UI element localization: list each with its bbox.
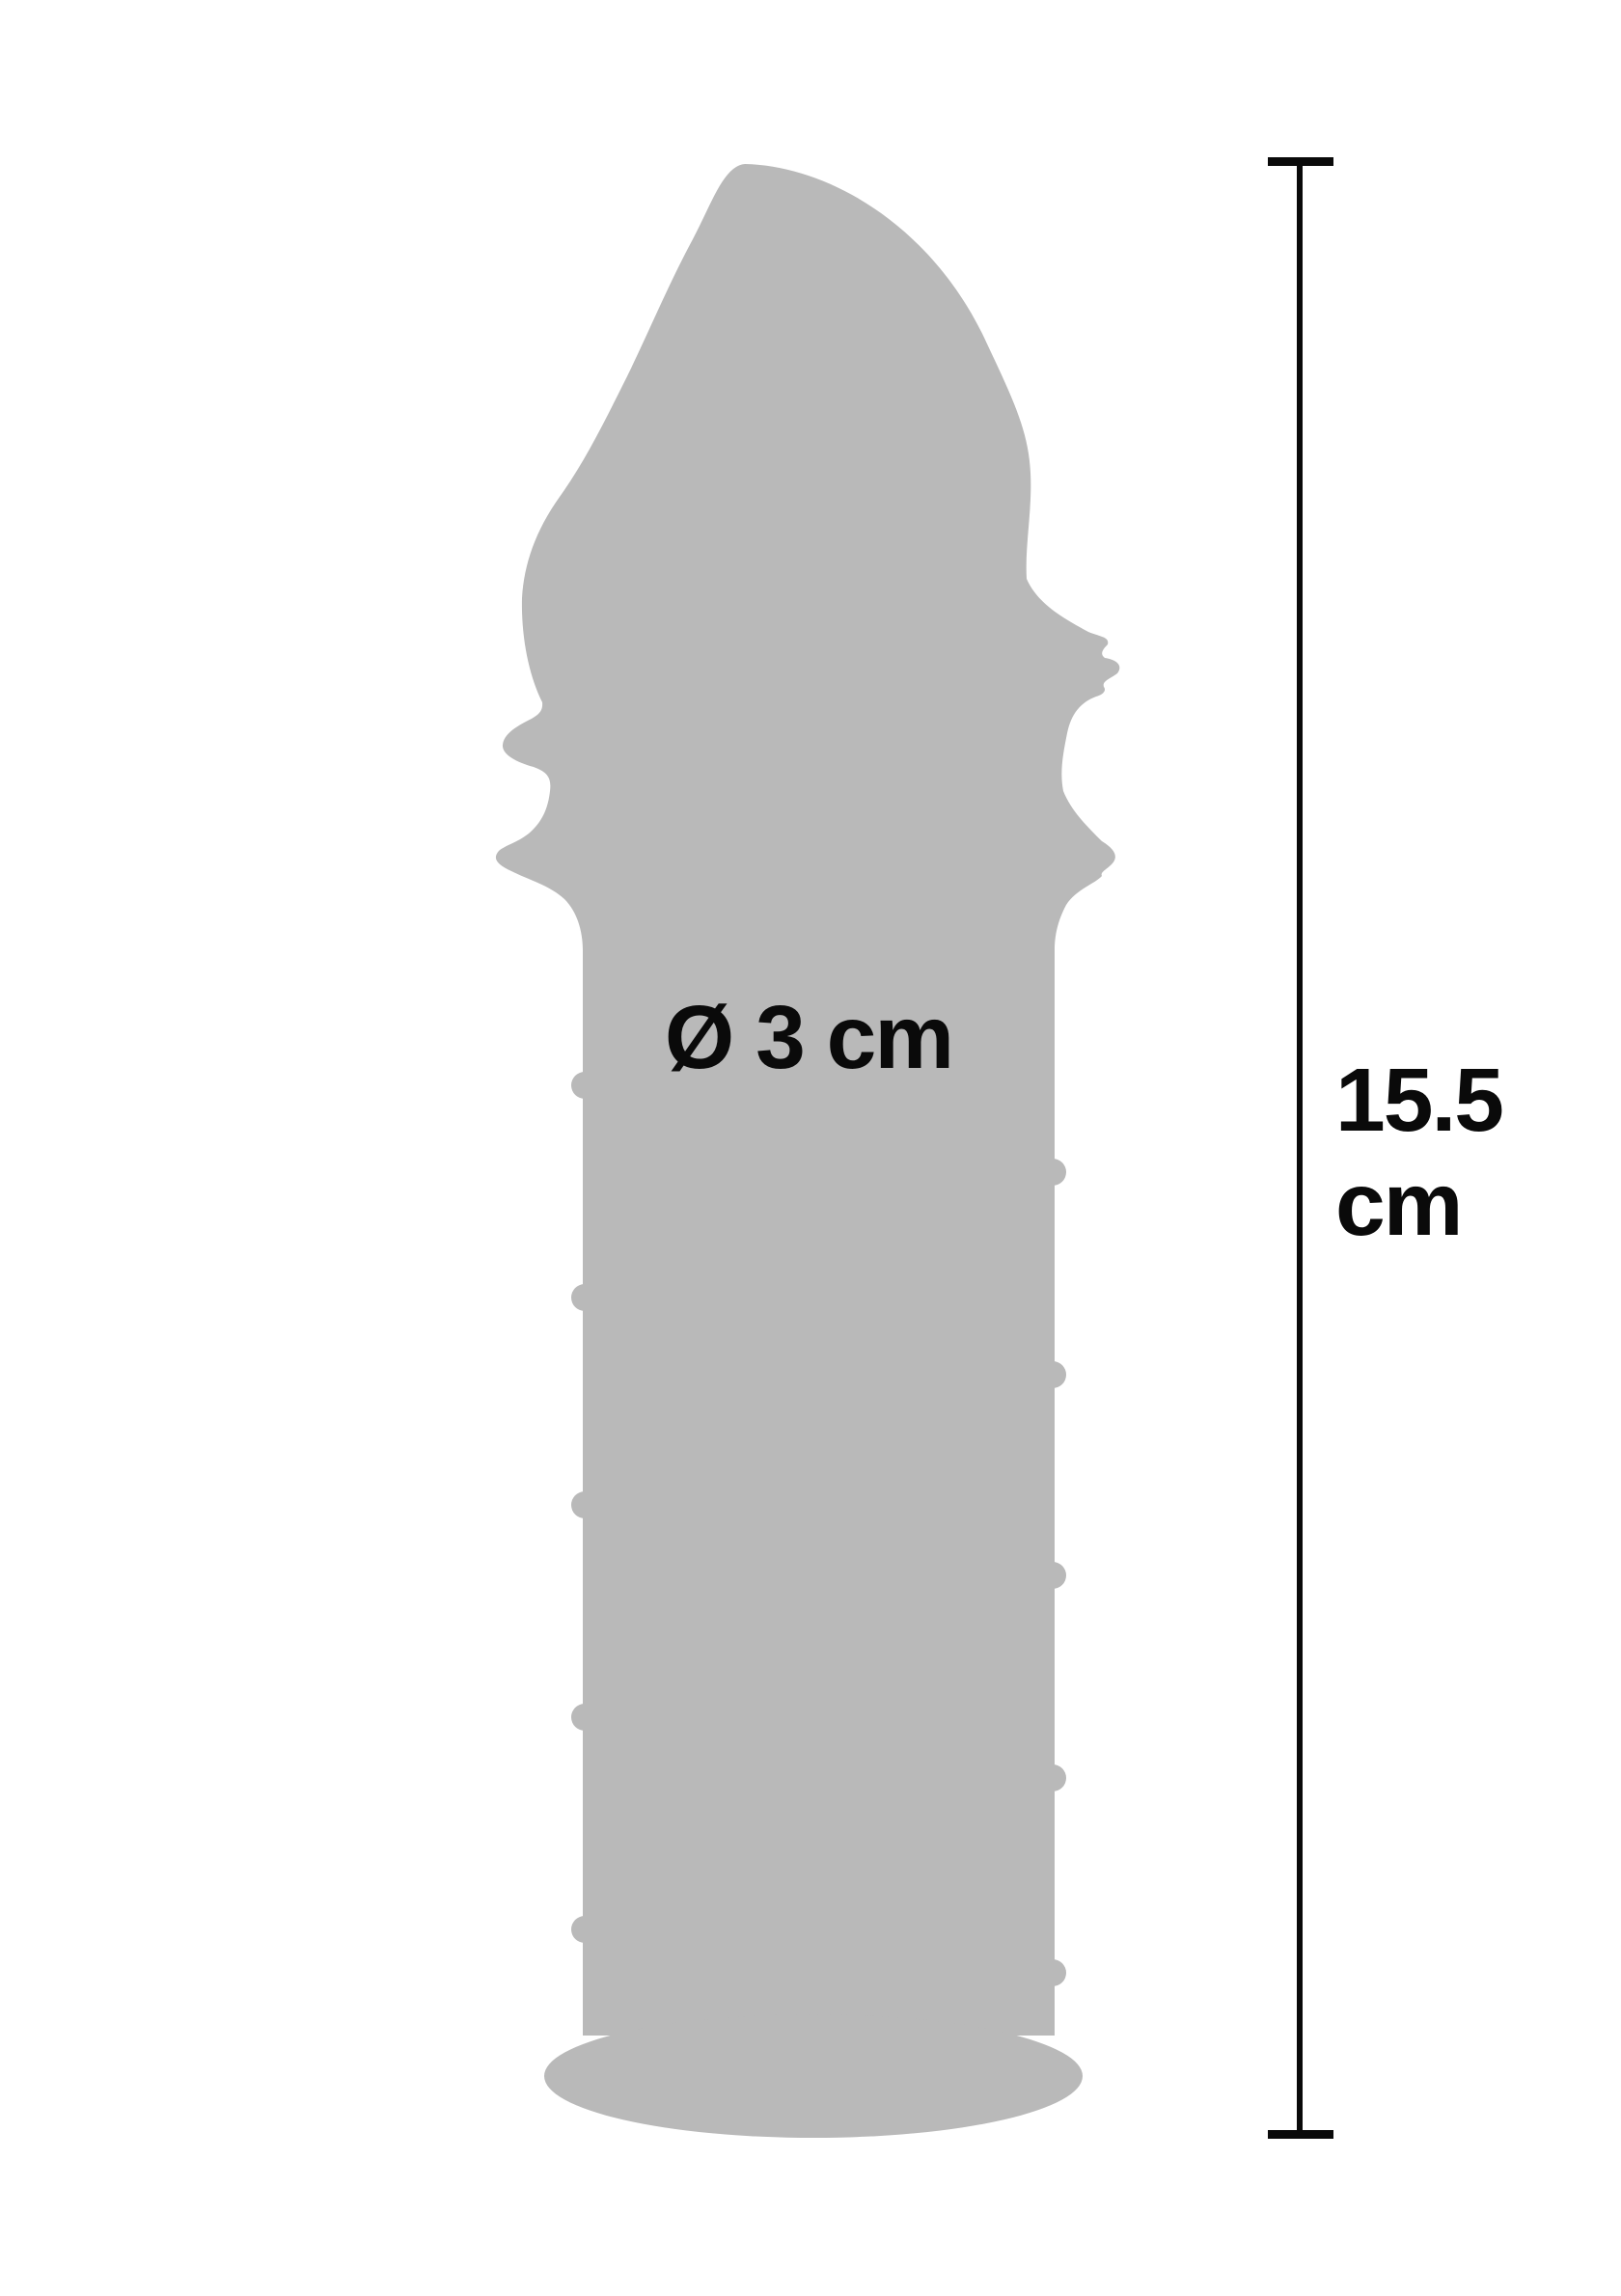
length-unit-label: cm <box>1335 1154 1461 1254</box>
stud-left-5 <box>571 1916 598 1943</box>
dimension-line-shaft <box>1297 157 1303 2139</box>
dimension-line-bottom-cap <box>1268 2130 1333 2139</box>
stud-left-1 <box>571 1072 598 1099</box>
stud-right-1 <box>1039 1159 1066 1186</box>
dimension-line-top-cap <box>1268 157 1333 166</box>
figure-canvas: Ø 3 cm 15.5 cm <box>0 0 1621 2296</box>
stud-right-2 <box>1039 1361 1066 1388</box>
stud-right-4 <box>1039 1764 1066 1791</box>
length-value-label: 15.5 <box>1335 1050 1502 1150</box>
product-silhouette <box>496 164 1119 2138</box>
stud-right-5 <box>1039 1959 1066 1986</box>
stud-left-4 <box>571 1704 598 1731</box>
stud-left-3 <box>571 1491 598 1518</box>
diameter-label: Ø 3 cm <box>665 987 952 1087</box>
stud-left-2 <box>571 1284 598 1311</box>
stud-right-3 <box>1039 1562 1066 1589</box>
product-dimension-figure: Ø 3 cm 15.5 cm <box>0 0 1621 2296</box>
product-base <box>544 2014 1083 2138</box>
